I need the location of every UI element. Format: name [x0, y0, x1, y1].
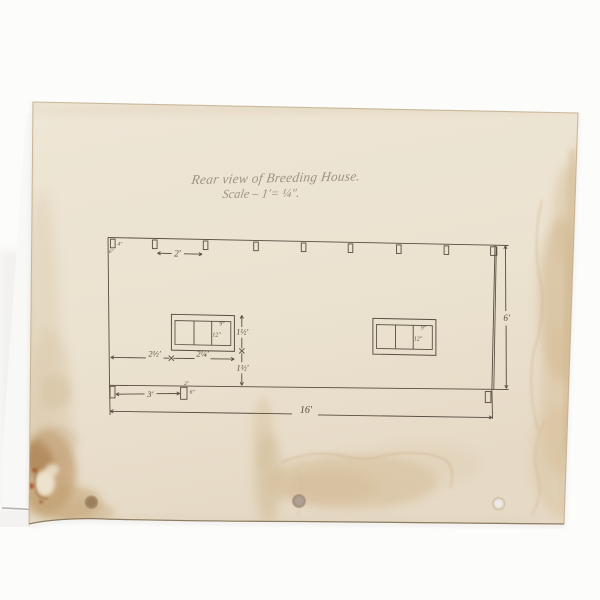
svg-text:16′: 16′ — [300, 405, 313, 416]
svg-text:12″: 12″ — [212, 332, 221, 338]
svg-text:3′: 3′ — [146, 389, 153, 399]
svg-text:6′: 6′ — [503, 313, 511, 323]
svg-text:12″: 12″ — [414, 336, 423, 342]
svg-text:1½′: 1½′ — [236, 328, 248, 337]
svg-text:2¼′: 2¼′ — [196, 350, 208, 359]
svg-text:9″: 9″ — [219, 321, 225, 327]
svg-text:Scale – 1′= ¼″.: Scale – 1′= ¼″. — [222, 186, 301, 201]
svg-text:2″: 2″ — [184, 381, 190, 387]
svg-text:9″: 9″ — [421, 325, 427, 331]
svg-text:2½′: 2½′ — [148, 350, 160, 359]
svg-text:1½′: 1½′ — [236, 363, 248, 372]
svg-text:6″: 6″ — [190, 390, 196, 396]
svg-text:2′: 2′ — [174, 248, 182, 258]
svg-text:4″: 4″ — [118, 241, 124, 248]
